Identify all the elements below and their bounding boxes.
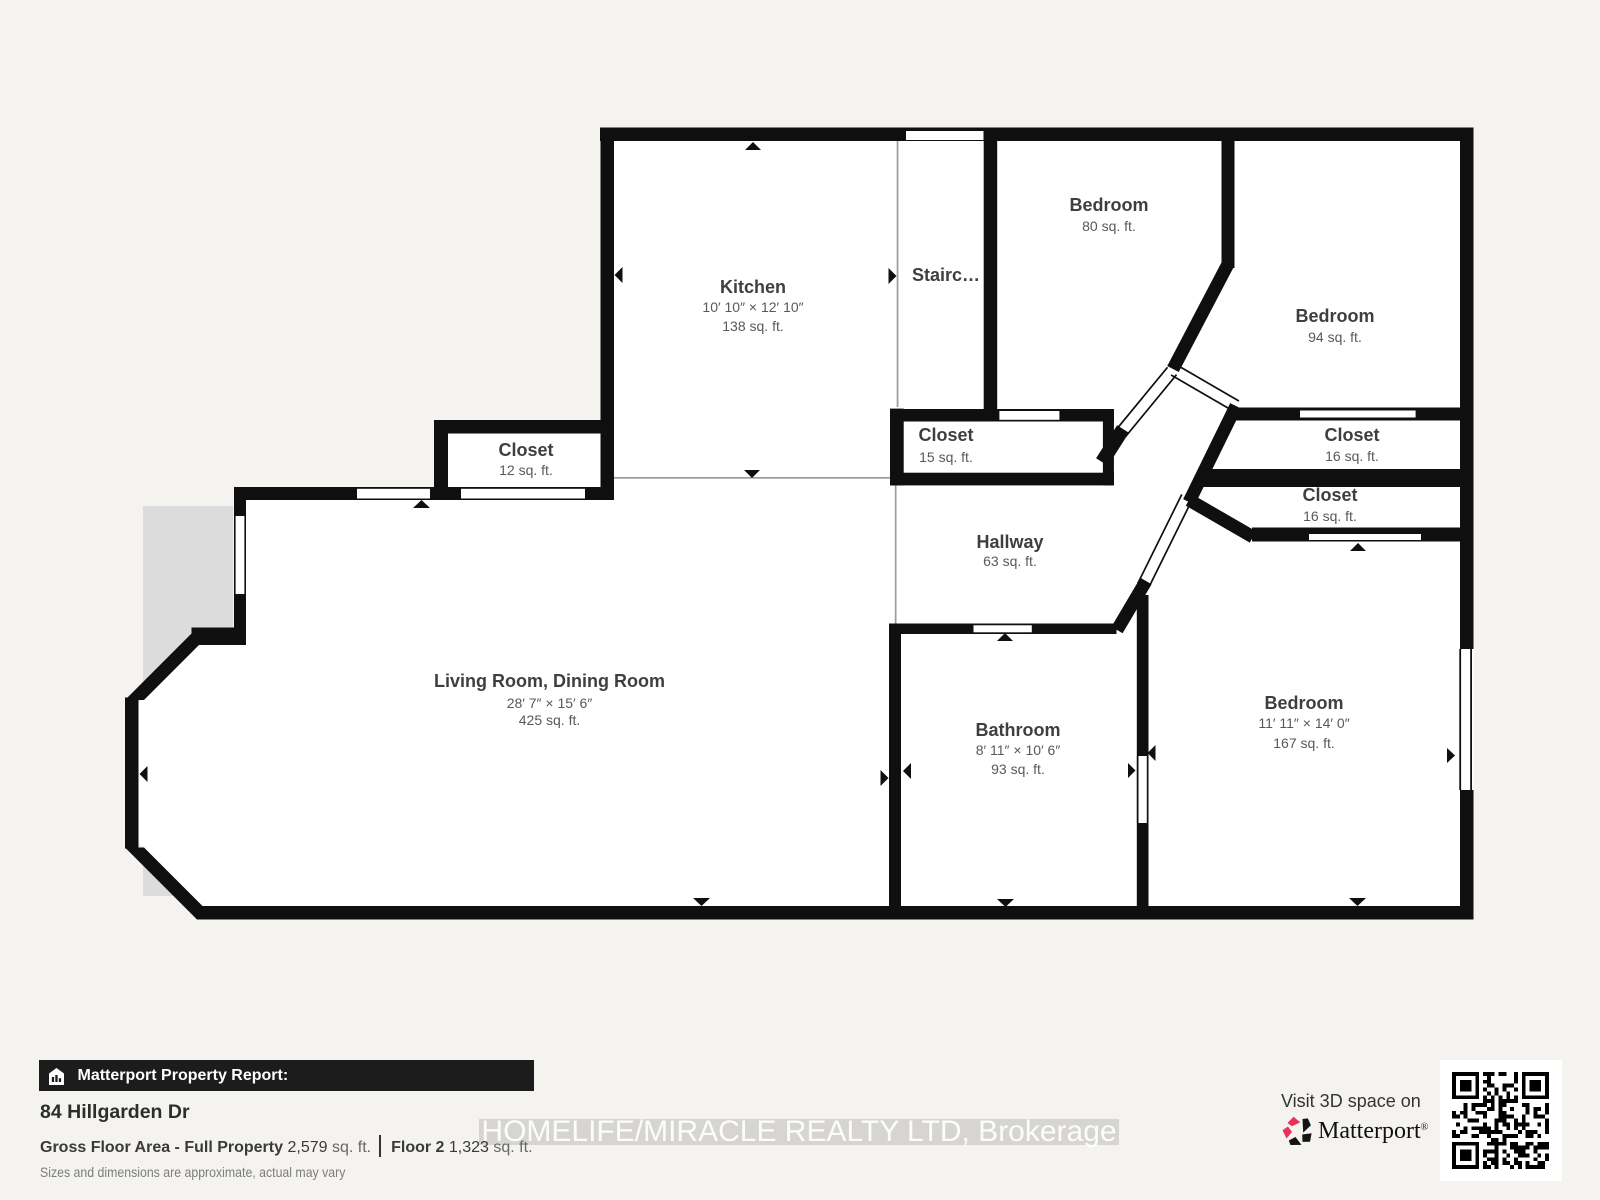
svg-text:16 sq. ft.: 16 sq. ft. [1325, 448, 1379, 464]
svg-text:Kitchen: Kitchen [720, 277, 786, 297]
svg-text:8′ 11″ × 10′ 6″: 8′ 11″ × 10′ 6″ [976, 742, 1061, 758]
svg-text:Living Room, Dining Room: Living Room, Dining Room [434, 671, 665, 691]
svg-text:15 sq. ft.: 15 sq. ft. [919, 449, 973, 465]
svg-text:Bedroom: Bedroom [1295, 306, 1374, 326]
svg-text:Bedroom: Bedroom [1069, 195, 1148, 215]
svg-text:Bedroom: Bedroom [1264, 693, 1343, 713]
svg-text:Stairc…: Stairc… [912, 265, 980, 285]
svg-text:Hallway: Hallway [976, 532, 1043, 552]
svg-text:16 sq. ft.: 16 sq. ft. [1303, 508, 1357, 524]
svg-text:Bathroom: Bathroom [976, 720, 1061, 740]
svg-text:93 sq. ft.: 93 sq. ft. [991, 761, 1045, 777]
svg-text:10′ 10″ × 12′ 10″: 10′ 10″ × 12′ 10″ [702, 299, 803, 315]
svg-text:Closet: Closet [1324, 425, 1379, 445]
svg-text:94 sq. ft.: 94 sq. ft. [1308, 329, 1362, 345]
svg-text:167 sq. ft.: 167 sq. ft. [1273, 735, 1334, 751]
svg-text:Closet: Closet [498, 440, 553, 460]
svg-text:Closet: Closet [918, 425, 973, 445]
svg-text:Closet: Closet [1302, 485, 1357, 505]
svg-text:28′ 7″ × 15′ 6″: 28′ 7″ × 15′ 6″ [507, 695, 593, 711]
svg-text:138 sq. ft.: 138 sq. ft. [722, 318, 783, 334]
svg-text:425 sq. ft.: 425 sq. ft. [519, 712, 580, 728]
svg-text:63 sq. ft.: 63 sq. ft. [983, 553, 1037, 569]
svg-text:11′ 11″ × 14′ 0″: 11′ 11″ × 14′ 0″ [1258, 715, 1349, 731]
svg-text:80 sq. ft.: 80 sq. ft. [1082, 218, 1136, 234]
svg-text:12 sq. ft.: 12 sq. ft. [499, 462, 553, 478]
